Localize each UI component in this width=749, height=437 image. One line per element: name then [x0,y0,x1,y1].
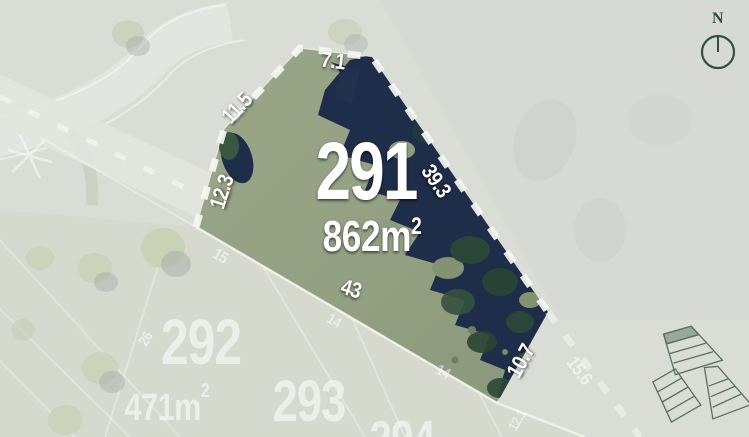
lot-map-canvas: 291 862m 2 7.1 11.5 12.3 39.3 43 10.7 15… [0,0,749,437]
lot294-number: 294 [369,414,434,437]
lot292-area: 471m 2 [125,389,210,427]
dim-top: 7.1 [320,49,347,74]
lot292-number: 292 [161,310,241,374]
lot-number: 291 [316,131,417,213]
lot293-number: 293 [273,373,346,431]
lot-area-value: 862m [323,215,412,259]
lot292-area-sup: 2 [201,381,210,401]
lot292-area-value: 471m [125,389,201,427]
lot-area: 862m 2 [323,215,422,259]
compass-north-label: N [712,10,724,28]
lot-area-sup: 2 [411,215,421,239]
